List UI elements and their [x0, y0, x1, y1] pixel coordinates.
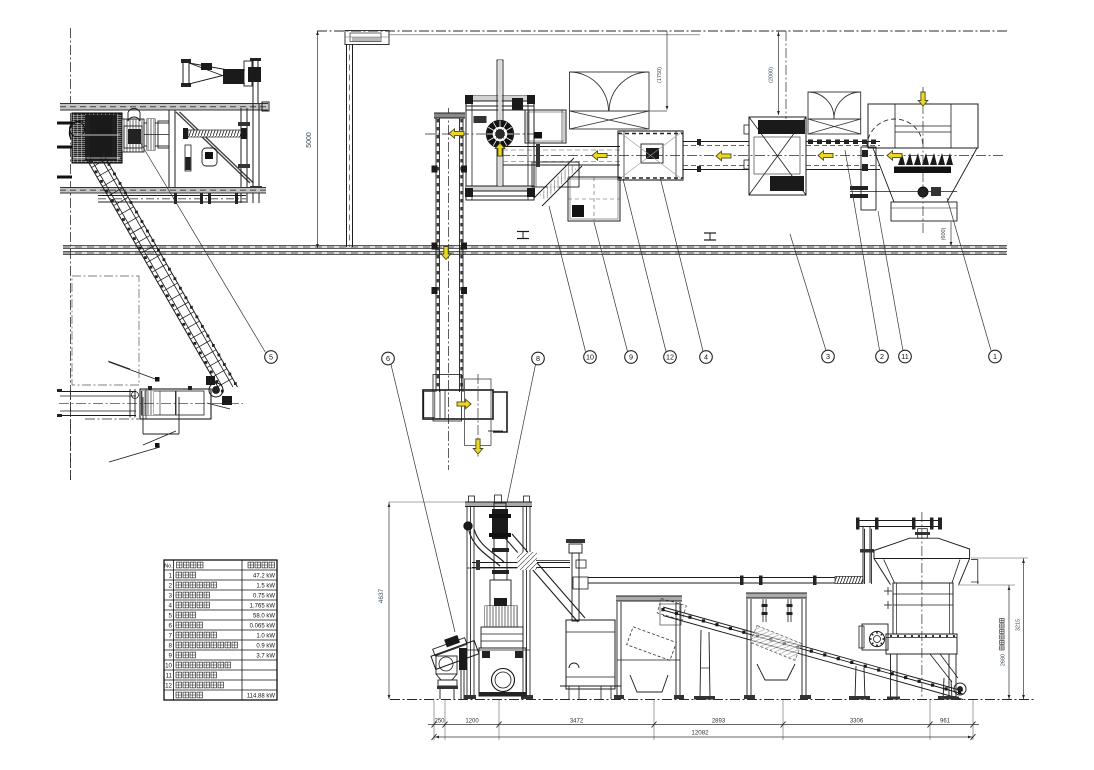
svg-text:11: 11	[901, 352, 908, 361]
svg-text:1.0 kW: 1.0 kW	[256, 634, 275, 640]
svg-text:0.9 kW: 0.9 kW	[256, 644, 275, 650]
svg-text:2893: 2893	[712, 719, 726, 725]
svg-text:(2000): (2000)	[769, 67, 775, 83]
svg-text:No.: No.	[164, 564, 172, 570]
svg-text:8: 8	[169, 643, 173, 650]
svg-text:250: 250	[434, 719, 445, 725]
svg-text:47.2 kW: 47.2 kW	[253, 574, 275, 580]
svg-text:5: 5	[269, 353, 273, 362]
svg-text:5: 5	[169, 613, 173, 620]
svg-text:12: 12	[666, 353, 674, 362]
svg-text:114.88 kW: 114.88 kW	[247, 694, 276, 700]
svg-text:3: 3	[826, 352, 830, 361]
svg-text:1.765 kW: 1.765 kW	[250, 604, 276, 610]
svg-text:0.75 kW: 0.75 kW	[253, 594, 275, 600]
svg-text:4637: 4637	[378, 588, 385, 603]
svg-text:10: 10	[586, 353, 594, 362]
svg-text:2680: 2680	[1001, 654, 1007, 666]
svg-text:961: 961	[940, 719, 951, 725]
svg-text:0.065 kW: 0.065 kW	[250, 624, 276, 630]
svg-text:1: 1	[993, 352, 997, 361]
svg-text:2: 2	[880, 352, 884, 361]
svg-text:5000: 5000	[306, 132, 313, 148]
svg-text:1200: 1200	[465, 719, 479, 725]
svg-text:1.5 kW: 1.5 kW	[256, 584, 275, 590]
svg-text:3306: 3306	[850, 719, 864, 725]
svg-text:7: 7	[169, 633, 173, 640]
svg-text:3472: 3472	[570, 719, 584, 725]
svg-text:8: 8	[536, 354, 540, 363]
svg-text:12: 12	[165, 683, 172, 690]
svg-text:58.0 kW: 58.0 kW	[253, 614, 275, 620]
svg-text:2: 2	[169, 583, 173, 590]
svg-text:(1750): (1750)	[657, 67, 663, 83]
svg-text:9: 9	[629, 353, 633, 362]
svg-text:9: 9	[169, 653, 173, 660]
svg-text:4: 4	[704, 353, 708, 362]
svg-text:3: 3	[169, 593, 173, 600]
svg-text:11: 11	[166, 673, 173, 680]
svg-text:3215: 3215	[1016, 619, 1022, 631]
svg-text:6: 6	[169, 623, 173, 630]
svg-text:12082: 12082	[691, 730, 709, 737]
svg-text:6: 6	[386, 354, 390, 363]
svg-text:10: 10	[165, 663, 172, 670]
svg-text:3.7 kW: 3.7 kW	[256, 654, 275, 660]
svg-text:1: 1	[169, 573, 173, 580]
svg-text:4: 4	[169, 603, 173, 610]
svg-text:(600): (600)	[941, 227, 947, 240]
